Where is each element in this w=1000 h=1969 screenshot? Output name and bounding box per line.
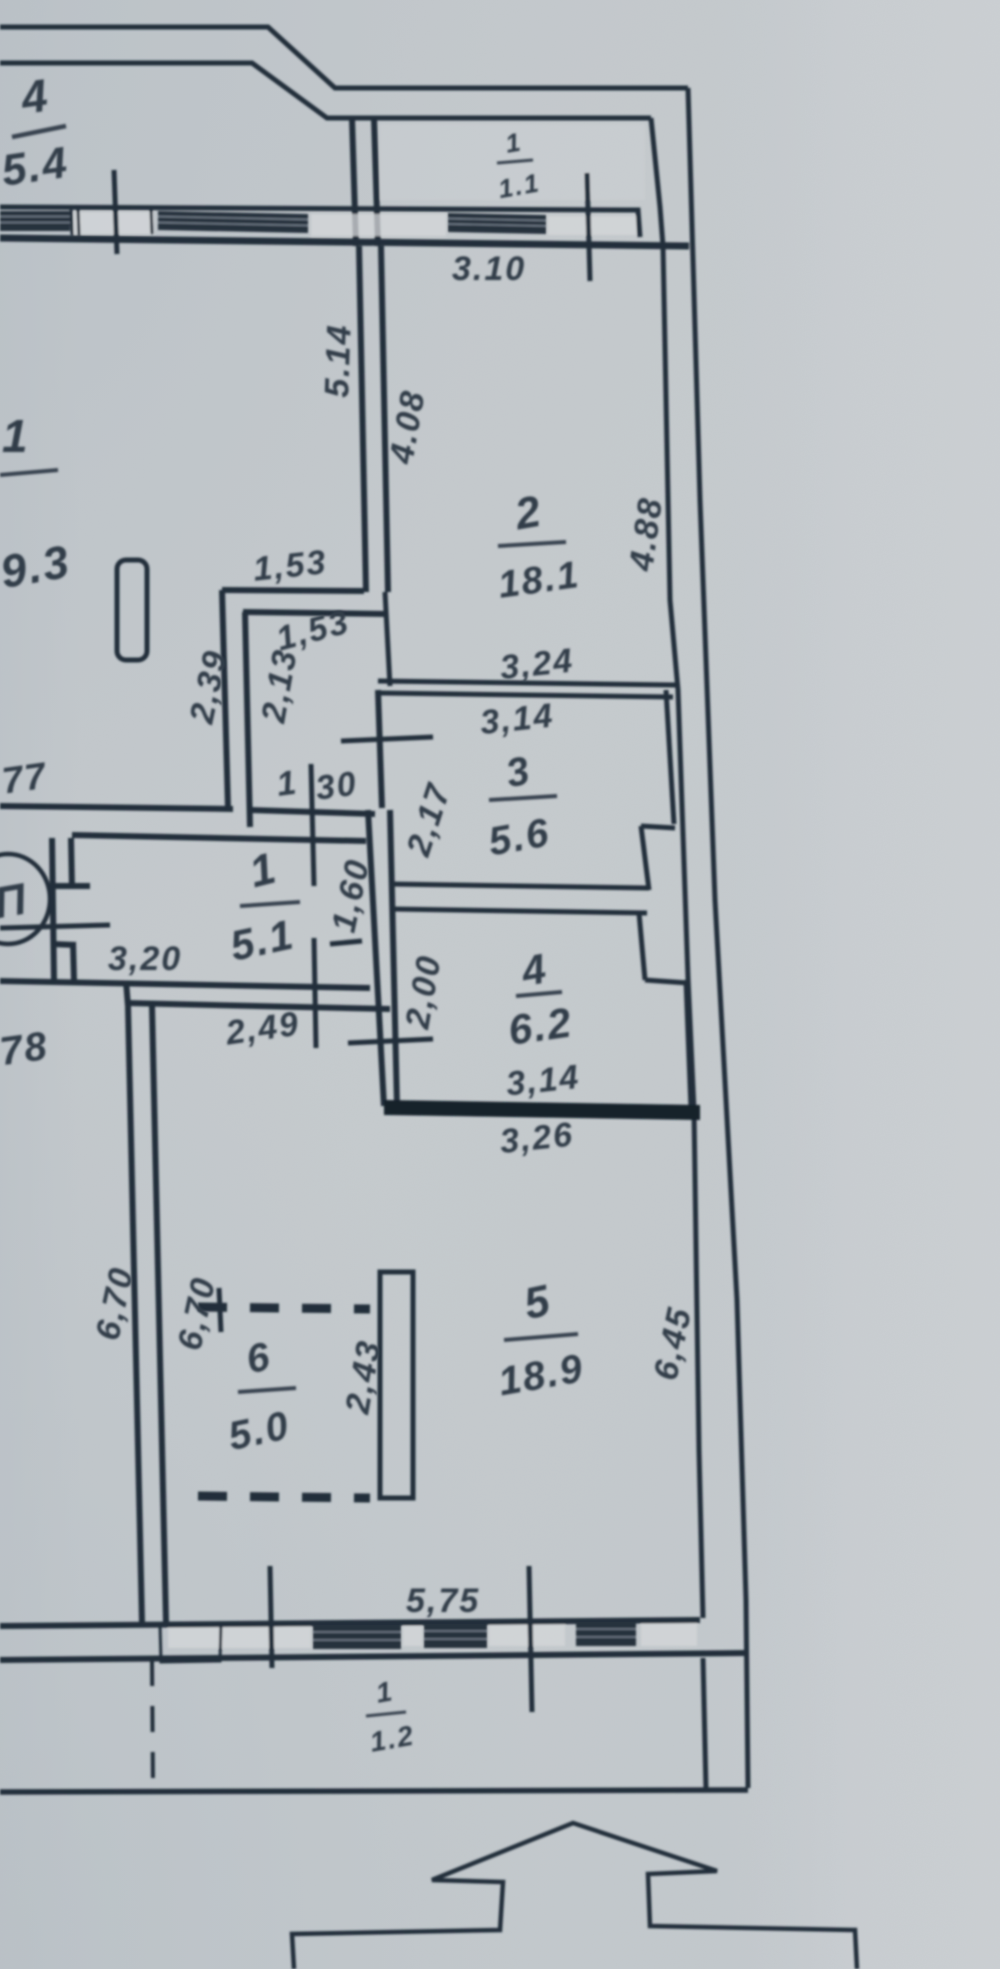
svg-text:1,53: 1,53 [251,543,329,589]
svg-text:5.4: 5.4 [0,138,72,196]
svg-text:3,26: 3,26 [498,1115,576,1161]
svg-text:6.2: 6.2 [505,998,575,1054]
svg-text:3.10: 3.10 [452,250,526,288]
svg-text:30: 30 [313,764,360,807]
svg-text:3,14: 3,14 [504,1058,582,1104]
svg-text:78: 78 [0,1024,51,1074]
svg-text:5,75: 5,75 [406,1582,480,1620]
svg-text:77: 77 [0,755,50,802]
svg-text:3,20: 3,20 [108,940,182,978]
svg-text:1: 1 [2,410,30,462]
svg-text:3,24: 3,24 [498,641,576,687]
svg-text:5.14: 5.14 [318,323,359,398]
svg-text:3,14: 3,14 [478,697,556,743]
